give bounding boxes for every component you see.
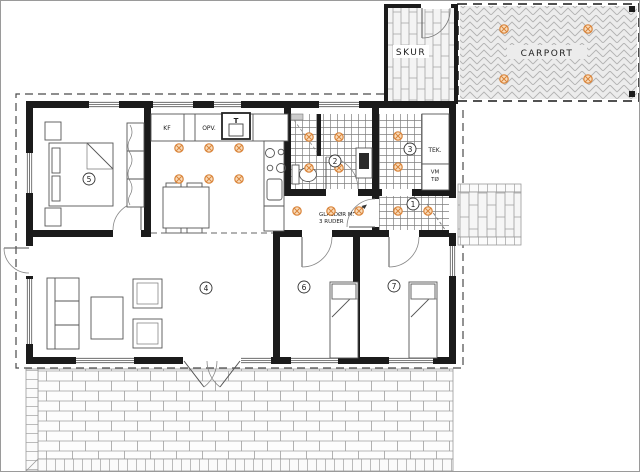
coffee-table xyxy=(91,297,123,339)
pillow xyxy=(332,284,356,299)
sofa xyxy=(47,278,79,349)
nightstand xyxy=(45,208,61,226)
ceiling-light-icon xyxy=(335,133,343,141)
nightstand xyxy=(45,122,61,140)
room-number-bathroom: 2 xyxy=(329,155,341,167)
wall-bath-tech xyxy=(372,108,379,196)
pillow xyxy=(411,284,435,299)
ceiling-light-icon xyxy=(235,175,243,183)
room-number-label: 2 xyxy=(333,157,338,166)
oven: T xyxy=(222,113,250,139)
ceiling-light-icon xyxy=(305,164,313,172)
ceiling-light-icon xyxy=(500,25,508,33)
tech-room-units: TEK. VM TØ xyxy=(422,114,449,190)
dishwasher-label: OPV. xyxy=(202,125,216,132)
ceiling-light-icon xyxy=(500,75,508,83)
ceiling-light-icon xyxy=(424,207,432,215)
carport-post xyxy=(629,6,635,12)
dining-set xyxy=(163,183,209,233)
ceiling-light-icon xyxy=(175,144,183,152)
room-number-living: 4 xyxy=(200,282,212,294)
armchair xyxy=(133,319,162,348)
bedroom7-furniture xyxy=(409,282,437,358)
terrace xyxy=(26,369,453,471)
ceiling-light-icon xyxy=(394,163,402,171)
wall-bedrooms-north xyxy=(273,230,449,237)
ceiling-light-icon xyxy=(293,207,301,215)
armchair xyxy=(133,279,162,308)
tech-label: TEK. xyxy=(427,147,441,154)
carport-label: CARPORT xyxy=(521,49,574,59)
bedroom6-furniture xyxy=(330,282,358,358)
room-number-bedroom6: 6 xyxy=(298,281,310,293)
room-number-label: 7 xyxy=(392,282,397,291)
ceiling-light-icon xyxy=(305,133,313,141)
ceiling-light-icon xyxy=(394,207,402,215)
room-number-bedroom7: 7 xyxy=(388,280,400,292)
ceiling-light-icon xyxy=(175,175,183,183)
ceiling-light-icon xyxy=(327,207,335,215)
wall-shower-stub xyxy=(317,114,321,156)
dining-table xyxy=(163,187,209,228)
room-number-tech: 3 xyxy=(404,143,416,155)
ceiling-light-icon xyxy=(205,175,213,183)
pillow xyxy=(52,148,60,173)
ceiling-light-icon xyxy=(355,207,363,215)
glass-door-note-line1: GLASDØR M. xyxy=(319,211,355,218)
wall-living-bedroom6 xyxy=(273,230,280,357)
kitchen-sink xyxy=(267,179,282,200)
ceiling-light-icon xyxy=(394,132,402,140)
room-number-main-bedroom: 5 xyxy=(83,173,95,185)
glass-door-note-line2: 3 RUDER xyxy=(319,219,344,225)
pillow xyxy=(52,176,60,201)
wall-bedroom5-kitchen xyxy=(144,108,151,237)
carport-post xyxy=(629,91,635,97)
room-number-label: 5 xyxy=(87,175,92,184)
ceiling-light-icon xyxy=(584,25,592,33)
room-number-label: 6 xyxy=(302,283,307,292)
ceiling-light-icon xyxy=(235,144,243,152)
room-number-label: 3 xyxy=(408,145,413,154)
tech-cabinet xyxy=(422,114,449,164)
wardrobe xyxy=(127,123,144,207)
shed-label: SKUR xyxy=(396,48,426,58)
room-number-label: 4 xyxy=(204,284,209,293)
shed-door-opening xyxy=(421,3,451,9)
floor-plan: CARPORT SKUR xyxy=(0,0,640,472)
room-number-label: 1 xyxy=(411,200,416,209)
entrance-path xyxy=(458,184,521,245)
carport: CARPORT xyxy=(458,4,639,101)
wash-basin xyxy=(359,153,369,169)
shower-head xyxy=(291,114,303,120)
dryer-label: TØ xyxy=(430,176,439,183)
shed: SKUR xyxy=(384,3,458,104)
toilet-tank xyxy=(292,165,299,184)
washer-label: VM xyxy=(431,170,440,176)
fridge-label: KF xyxy=(163,125,171,132)
oven-label: T xyxy=(234,117,239,125)
room-number-entry: 1 xyxy=(407,198,419,210)
ceiling-light-icon xyxy=(205,144,213,152)
ceiling-light-icon xyxy=(584,75,592,83)
